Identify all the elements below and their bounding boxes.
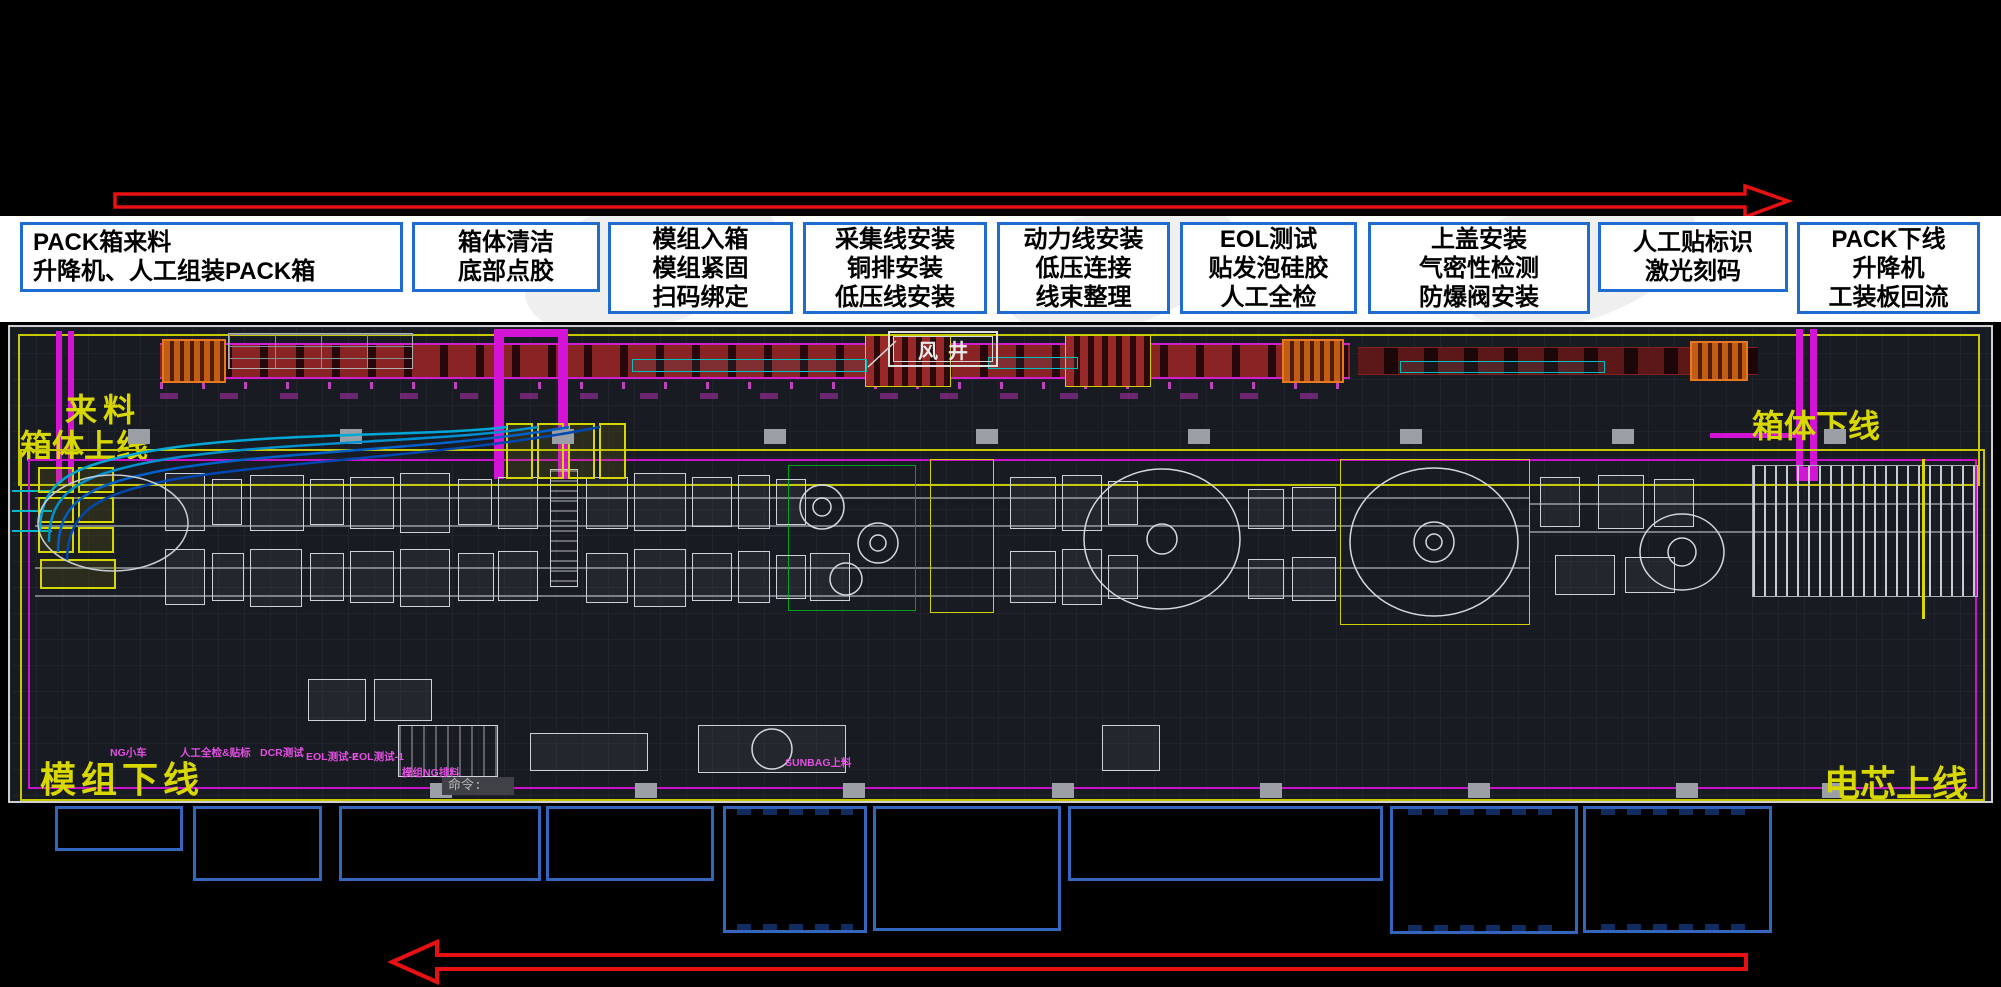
- cad-machine: [976, 429, 998, 444]
- cad-machine: [1102, 725, 1160, 771]
- cad-machine: [1248, 559, 1284, 599]
- robot-cell-yellow: [930, 459, 994, 613]
- cad-machine: [843, 783, 865, 798]
- step-line: 气密性检测: [1419, 254, 1539, 283]
- cad-machine: [1062, 549, 1102, 605]
- machine-label: SUNBAG上料: [785, 755, 852, 770]
- cad-machine: [250, 475, 304, 531]
- cell-online-label: 电芯上线: [1824, 755, 1968, 803]
- process-step-box-6: EOL测试 贴发泡硅胶 人工全检: [1180, 222, 1357, 314]
- cad-machine: [1188, 429, 1210, 444]
- step-line: 低压线安装: [835, 283, 955, 312]
- process-step-box-4: 采集线安装 铜排安装 低压线安装: [803, 222, 987, 314]
- robot-cell-green: [788, 465, 916, 611]
- module-offline-label: 模组下线: [40, 751, 204, 803]
- step-line: 贴发泡硅胶: [1209, 254, 1329, 283]
- cad-machine: [1292, 487, 1336, 531]
- faint-text-hint: [737, 924, 853, 930]
- command-prompt-text: 命令:: [448, 778, 482, 793]
- cad-machine: [1468, 783, 1490, 798]
- cad-machine: [776, 479, 806, 525]
- cad-machine: [550, 469, 578, 587]
- step-line: 底部点胶: [458, 257, 554, 286]
- cad-machine: [1108, 555, 1138, 599]
- step-line: 线束整理: [1036, 283, 1132, 312]
- cad-machine: [38, 497, 74, 523]
- process-step-box-8: 人工贴标识 激光刻码: [1598, 222, 1788, 292]
- cad-machine: [350, 551, 394, 603]
- cad-machine: [586, 477, 628, 529]
- cad-machine: [635, 783, 657, 798]
- cad-machine: [1108, 481, 1138, 525]
- cad-machine: [1625, 557, 1675, 593]
- cad-machine: [1612, 429, 1634, 444]
- cad-machine: [78, 527, 114, 553]
- cad-machine: [308, 679, 366, 721]
- cad-machine: [1400, 429, 1422, 444]
- cad-machine: [506, 423, 533, 479]
- cad-machine: [78, 467, 114, 493]
- cad-machine: [40, 559, 116, 589]
- cad-machine: [599, 423, 626, 479]
- cyan-label-strip: [988, 357, 1078, 369]
- machine-label: EOL测试-1: [352, 749, 404, 764]
- lifter-orange-far-right: [1690, 341, 1748, 381]
- cad-machine: [634, 549, 686, 607]
- station-tags: [160, 393, 1350, 399]
- cad-machine: [530, 733, 648, 771]
- faint-text-hint: [1408, 925, 1561, 931]
- step-line: 低压连接: [1036, 254, 1132, 283]
- cad-machine: [692, 477, 732, 527]
- cad-machine: [1052, 783, 1074, 798]
- cad-machine: [1248, 489, 1284, 529]
- cad-machine: [400, 473, 450, 533]
- step-line: 动力线安装: [1024, 225, 1144, 254]
- cad-machine: [1676, 783, 1698, 798]
- step-line: 升降机: [1853, 254, 1925, 283]
- wind-shaft-box: 风井: [888, 331, 998, 367]
- step-line: 铜排安装: [847, 254, 943, 283]
- cad-machine: [78, 497, 114, 523]
- step-line: 防爆阀安装: [1419, 283, 1539, 312]
- machine-label: EOL测试-2: [306, 749, 358, 764]
- step-line: 激光刻码: [1645, 257, 1741, 286]
- lifter-orange-left: [162, 339, 226, 383]
- cad-machine: [165, 549, 205, 605]
- cyan-label-strip: [632, 359, 867, 372]
- cad-machine: [1654, 479, 1694, 527]
- cad-machine: [310, 553, 344, 601]
- cad-machine: [38, 527, 74, 553]
- step-line: 人工贴标识: [1633, 228, 1753, 257]
- step-line: 上盖安装: [1431, 225, 1527, 254]
- cad-machine: [692, 553, 732, 601]
- cad-machine: [1598, 475, 1644, 529]
- step-line: PACK下线: [1831, 225, 1945, 254]
- cad-machine: [764, 429, 786, 444]
- lifter-orange-right: [1282, 339, 1344, 383]
- cad-machine: [128, 429, 150, 444]
- cad-machine: [458, 553, 494, 601]
- legend-box-8: [1390, 806, 1578, 934]
- cad-machine: [498, 551, 538, 601]
- cad-machine: [212, 553, 244, 601]
- process-step-box-7: 上盖安装 气密性检测 防爆阀安装: [1368, 222, 1590, 314]
- process-step-box-9: PACK下线 升降机 工装板回流: [1797, 222, 1980, 314]
- cad-machine: [738, 475, 770, 529]
- legend-box-2: [193, 806, 322, 881]
- conveyor-wheels: [160, 382, 1350, 389]
- process-step-box-5: 动力线安装 低压连接 线束整理: [997, 222, 1170, 314]
- machine-label: DCR测试: [260, 745, 304, 760]
- cad-machine: [400, 549, 450, 607]
- gantry-beam: [494, 329, 568, 337]
- box-line-out-label: 箱体下线: [1752, 401, 1880, 447]
- step-line: 模组入箱: [653, 225, 749, 254]
- step-line: 采集线安装: [835, 225, 955, 254]
- cad-machine: [250, 549, 302, 607]
- command-prompt: 命令:: [442, 777, 514, 795]
- faint-text-hint: [1601, 809, 1755, 815]
- legend-box-4: [546, 806, 714, 881]
- cad-machine: [310, 479, 344, 525]
- faint-text-hint: [1408, 809, 1561, 815]
- step-line: PACK箱来料: [33, 228, 171, 257]
- legend-box-6: [873, 806, 1061, 931]
- cad-machine: [552, 429, 574, 444]
- cad-machine: [1824, 429, 1846, 444]
- cad-machine: [374, 679, 432, 721]
- cad-parameter-table: [228, 333, 413, 369]
- process-step-box-3: 模组入箱 模组紧固 扫码绑定: [608, 222, 793, 314]
- process-step-band: PACK箱来料 升降机、人工组装PACK箱 箱体清洁 底部点胶 模组入箱 模组紧…: [0, 216, 2001, 322]
- cad-machine: [1062, 475, 1102, 531]
- cad-machine: [350, 477, 394, 529]
- faint-text-hint: [737, 809, 853, 815]
- rotary-cell-yellow: [1340, 459, 1530, 625]
- cad-viewport: 风井 来料 箱体上线 箱体下线: [8, 325, 1993, 803]
- cad-machine: [738, 551, 770, 603]
- cad-machine: [634, 473, 686, 531]
- cad-machine: [340, 429, 362, 444]
- step-line: 人工全检: [1221, 283, 1317, 312]
- yellow-divider: [1922, 459, 1925, 619]
- legend-box-7: [1068, 806, 1383, 881]
- cad-machine: [1555, 555, 1615, 595]
- process-step-box-1: PACK箱来料 升降机、人工组装PACK箱: [20, 222, 403, 292]
- cad-machine: [1260, 783, 1282, 798]
- page: PACK箱来料 升降机、人工组装PACK箱 箱体清洁 底部点胶 模组入箱 模组紧…: [0, 0, 2001, 987]
- step-line: 工装板回流: [1829, 283, 1949, 312]
- flow-arrow-left: [380, 935, 1760, 987]
- step-line: 箱体清洁: [458, 228, 554, 257]
- cad-machine: [810, 553, 850, 601]
- legend-box-9: [1583, 806, 1772, 933]
- cad-machine: [776, 555, 806, 599]
- cad-machine: [586, 553, 628, 603]
- cell-feed-rack: [1752, 465, 1978, 597]
- legend-box-1: [55, 806, 183, 851]
- step-line: 升降机、人工组装PACK箱: [33, 257, 315, 286]
- legend-box-5: [723, 806, 867, 933]
- cad-machine: [1010, 477, 1056, 529]
- step-line: 扫码绑定: [653, 283, 749, 312]
- cad-machine: [498, 477, 538, 529]
- cad-machine: [165, 473, 205, 531]
- cad-machine: [1292, 557, 1336, 601]
- cad-machine: [38, 467, 74, 493]
- cad-machine: [212, 479, 242, 525]
- cad-machine: [458, 479, 492, 525]
- legend-box-3: [339, 806, 541, 881]
- cad-machine: [1010, 551, 1056, 603]
- cad-machine: [1540, 477, 1580, 527]
- step-line: EOL测试: [1220, 225, 1317, 254]
- step-line: 模组紧固: [653, 254, 749, 283]
- process-step-box-2: 箱体清洁 底部点胶: [412, 222, 600, 292]
- cyan-label-strip: [1400, 361, 1605, 373]
- faint-text-hint: [1601, 924, 1755, 930]
- wind-shaft-inner-border: [893, 336, 993, 362]
